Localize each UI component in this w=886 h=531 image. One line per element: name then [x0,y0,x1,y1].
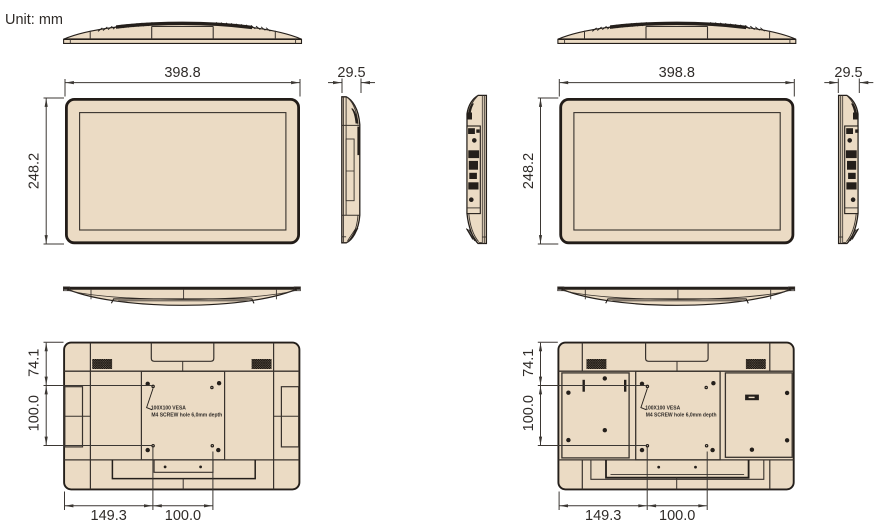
svg-text:398.8: 398.8 [164,65,200,81]
svg-text:100.0: 100.0 [165,508,201,524]
svg-text:29.5: 29.5 [834,65,862,81]
svg-text:100X100 VESA: 100X100 VESA [645,406,680,412]
svg-text:149.3: 149.3 [585,508,621,524]
svg-text:248.2: 248.2 [521,153,537,189]
svg-text:100X100 VESA: 100X100 VESA [151,406,186,412]
svg-text:100.0: 100.0 [659,508,695,524]
svg-text:M4 SCREW hole 6,0mm depth: M4 SCREW hole 6,0mm depth [151,412,222,418]
svg-text:Unit: mm: Unit: mm [5,12,63,28]
svg-text:74.1: 74.1 [521,349,537,377]
svg-text:100.0: 100.0 [27,395,43,431]
svg-text:74.1: 74.1 [27,349,43,377]
svg-text:100.0: 100.0 [521,395,537,431]
svg-text:248.2: 248.2 [27,153,43,189]
svg-text:M4 SCREW hole 6,0mm depth: M4 SCREW hole 6,0mm depth [646,412,717,418]
svg-text:29.5: 29.5 [337,65,365,81]
svg-text:398.8: 398.8 [659,65,695,81]
svg-text:149.3: 149.3 [91,508,127,524]
